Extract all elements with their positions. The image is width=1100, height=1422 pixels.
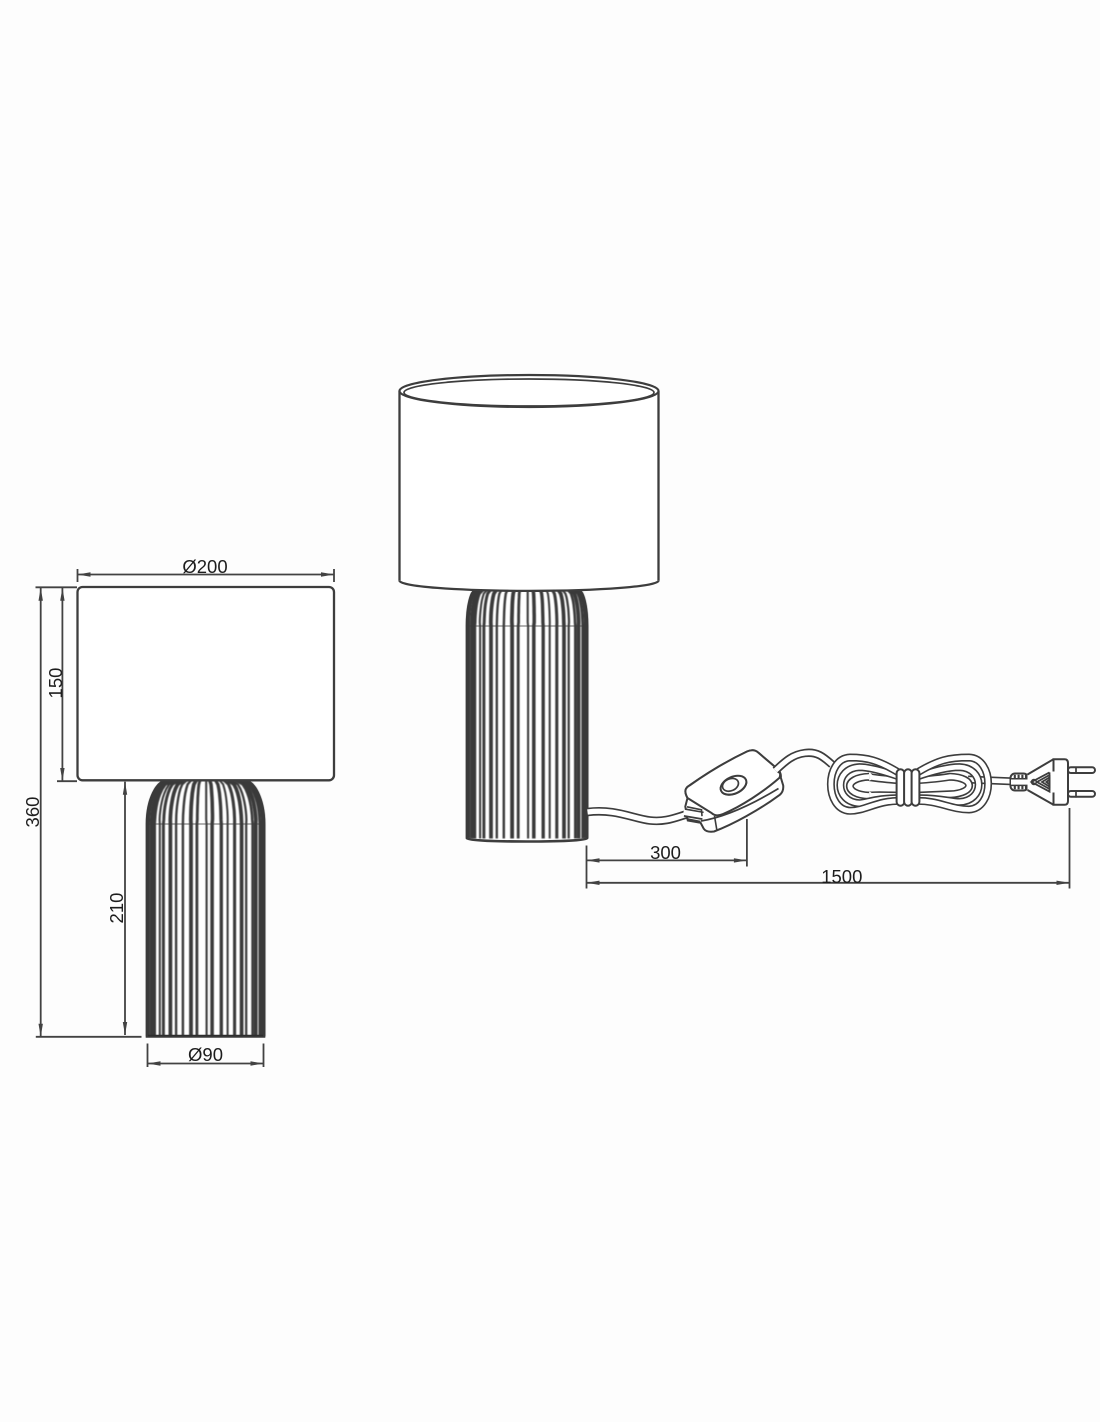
svg-text:210: 210 <box>106 893 127 924</box>
svg-text:150: 150 <box>45 668 66 699</box>
svg-text:360: 360 <box>22 797 43 828</box>
svg-text:300: 300 <box>650 842 681 863</box>
svg-text:Ø200: Ø200 <box>182 556 227 577</box>
svg-text:1500: 1500 <box>821 866 862 887</box>
svg-text:Ø90: Ø90 <box>188 1044 223 1065</box>
